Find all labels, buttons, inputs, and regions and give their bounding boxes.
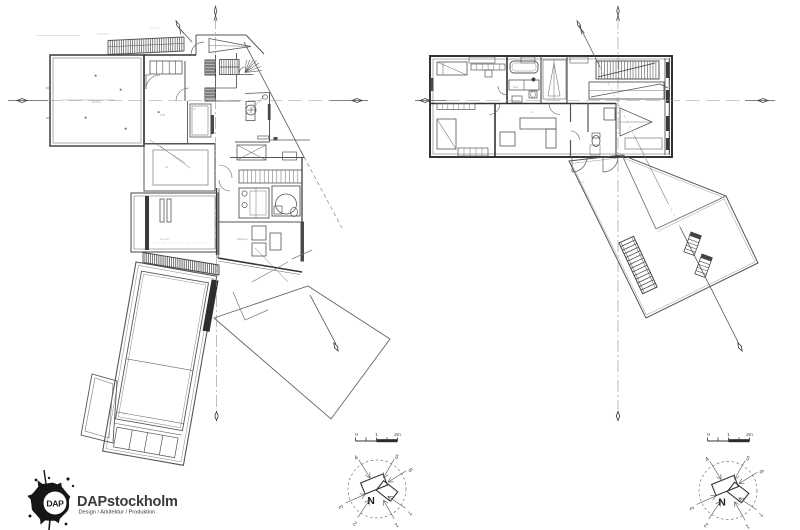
svg-text:N: N	[718, 497, 726, 509]
svg-text:Storage: Storage	[237, 237, 248, 241]
svg-text:xx,x m: xx,x m	[160, 237, 169, 241]
svg-text:xx: xx	[530, 110, 534, 114]
svg-text:0: 0	[355, 432, 358, 438]
svg-text:N: N	[367, 495, 375, 507]
svg-text:1: 1	[375, 432, 378, 438]
svg-text:178: 178	[160, 113, 165, 117]
svg-text:2m: 2m	[746, 432, 753, 438]
svg-text:Design / Arkitektur / Produkti: Design / Arkitektur / Produktion	[79, 510, 156, 516]
svg-text:2m: 2m	[394, 432, 401, 438]
svg-text:bad: bad	[513, 85, 518, 89]
svg-text:17: 17	[193, 107, 197, 111]
svg-text:0: 0	[707, 432, 710, 438]
svg-text:1: 1	[727, 432, 730, 438]
svg-text:DAPstockholm: DAPstockholm	[77, 494, 178, 510]
svg-text:xx: xx	[165, 165, 169, 169]
svg-text:DAP: DAP	[46, 499, 64, 509]
